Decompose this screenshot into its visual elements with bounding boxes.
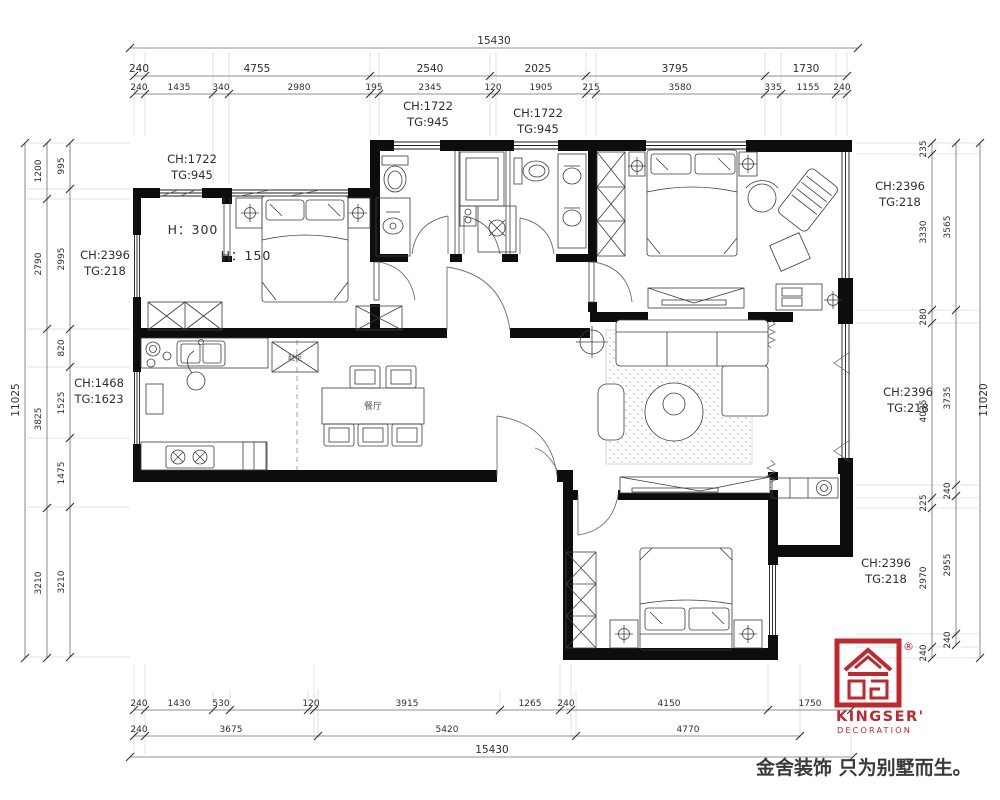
gas-stove-icon: [166, 446, 214, 468]
dim-text: 215: [582, 83, 599, 93]
ch-label: CH:1722: [167, 152, 217, 166]
dim-text: 120: [484, 83, 501, 93]
dimensions-bottom: 240 1430 530 120 3915 1265 240 4150 1750…: [126, 699, 857, 761]
tg-label: TG:218: [864, 572, 907, 586]
ch-label: CH:2396: [875, 179, 925, 193]
ch-label: CH:2396: [80, 248, 130, 262]
kingser-logo: ® KINGSER' DECORATION: [836, 640, 925, 735]
dim-text: 2980: [288, 83, 311, 93]
window-icon: [394, 142, 440, 149]
dim-text: 3580: [669, 83, 692, 93]
living-room: [576, 320, 770, 493]
tv-cabinet-icon: [620, 477, 770, 493]
dim-text: 240: [943, 482, 953, 499]
door-icon: [412, 216, 448, 254]
dim-text: 1475: [57, 462, 67, 485]
annotation-labels: CH:1722 TG:945 CH:1722 TG:945 CH:1722 TG…: [73, 99, 932, 586]
window-icon: [646, 142, 746, 149]
dim-text: 340: [212, 83, 229, 93]
storage-room: [148, 302, 222, 330]
dim-text: 3915: [396, 699, 419, 709]
chair-icon: [358, 424, 388, 446]
kitchen: [141, 338, 268, 470]
window-icon: [160, 190, 202, 196]
dim-text: 1750: [799, 699, 822, 709]
ch-label: CH:2396: [861, 556, 911, 570]
dim-text: 240: [833, 83, 850, 93]
dim-text: 3210: [57, 570, 67, 593]
ch-label: CH:2396: [883, 385, 933, 399]
dim-text: 2540: [417, 63, 444, 75]
door-icon: [578, 495, 618, 535]
lounge-chair-icon: [777, 167, 840, 233]
dim-text: 1525: [57, 392, 67, 415]
brand-subtitle: DECORATION: [837, 725, 912, 735]
dim-text: 5420: [436, 725, 459, 735]
bedroom2: [566, 548, 762, 650]
window-icon: [770, 565, 776, 635]
tg-label: TG:945: [406, 115, 449, 129]
registered-mark: ®: [903, 640, 914, 653]
bathroom-a: [376, 156, 410, 256]
dimensions-top: 15430 240 4755 2540 2025 3795 1730 240 1…: [126, 35, 862, 98]
dimensions-left: 11025 1200 2790 3825 3210 995 2995 820 1…: [10, 139, 74, 662]
wardrobe-icon: [597, 152, 625, 256]
floor-plan-drawing: 15430 240 4755 2540 2025 3795 1730 240 1…: [0, 0, 1000, 800]
double-bed-icon: [647, 150, 737, 256]
window-icon: [135, 235, 140, 297]
doors: [374, 216, 632, 535]
tg-label: TG:218: [878, 195, 921, 209]
ch-label: CH:1468: [74, 376, 124, 390]
chair-icon: [350, 366, 380, 388]
tv-cabinet-icon: [648, 288, 744, 308]
partitions: [224, 151, 510, 470]
height-label: H：150: [221, 248, 272, 263]
water-heater-icon: [146, 384, 163, 414]
dim-text: 3795: [662, 63, 689, 75]
dim-text: 4770: [677, 725, 700, 735]
dim-text: 195: [365, 83, 382, 93]
window-icon: [135, 372, 140, 444]
dimensions-right: 235 3330 280 4035 225 2970 240 3565 3735…: [919, 139, 990, 662]
ch-label: CH:1722: [403, 99, 453, 113]
dim-text: 1430: [168, 699, 191, 709]
dim-text: 240: [130, 83, 147, 93]
ch-label: CH:1722: [513, 106, 563, 120]
dim-text: 1730: [793, 63, 820, 75]
dim-text: 2345: [419, 83, 442, 93]
window-icon: [232, 190, 348, 196]
ottoman-icon: [770, 233, 811, 272]
dim-text: 11025: [10, 383, 22, 416]
brand-slogan: 金舍装饰 只为别墅而生。: [755, 756, 972, 779]
dim-text: 3735: [943, 387, 953, 410]
balcony: [772, 478, 838, 498]
side-table-icon: [598, 384, 624, 440]
dim-text: 4150: [658, 699, 681, 709]
double-washbasin-icon: [558, 154, 586, 248]
dim-text: 530: [212, 699, 229, 709]
chair-icon: [386, 366, 416, 388]
washbasin-icon: [376, 198, 410, 256]
entry-hall: 鞋柜: [272, 342, 318, 372]
shoe-cabinet-label: 鞋柜: [288, 353, 302, 362]
dim-text: 3565: [943, 216, 953, 239]
dim-text: 2025: [525, 63, 552, 75]
master-bedroom: [597, 150, 842, 310]
balcony-glazing: [842, 152, 849, 278]
counter-icon: [141, 338, 268, 368]
window-icon: [514, 142, 558, 149]
dim-text: 2955: [943, 554, 953, 577]
dim-text: 1435: [168, 83, 191, 93]
double-bed-icon: [640, 548, 732, 650]
washing-machine-icon: [772, 478, 838, 498]
door-icon: [520, 218, 554, 254]
floor-plan-canvas: 15430 240 4755 2540 2025 3795 1730 240 1…: [0, 0, 1000, 800]
dim-text: 240: [129, 63, 149, 75]
dim-text: 280: [919, 308, 929, 325]
dim-text: 1265: [519, 699, 542, 709]
toilet-icon: [514, 158, 549, 184]
tg-label: TG:1623: [73, 392, 123, 406]
dim-text: 15430: [477, 35, 510, 47]
dim-text: 240: [943, 631, 953, 648]
dim-text: 240: [919, 644, 929, 661]
dim-text: 3330: [919, 220, 929, 243]
door-icon: [589, 262, 632, 302]
cabinet-icon: [460, 206, 476, 226]
dim-text: 2970: [919, 566, 929, 589]
dim-text: 4755: [244, 63, 271, 75]
dim-text: 3675: [220, 725, 243, 735]
desk-icon: [776, 284, 822, 310]
double-bed-icon: [262, 196, 348, 302]
dining-room-label: 餐厅: [364, 400, 382, 412]
tg-label: TG:218: [83, 264, 126, 278]
door-icon: [464, 216, 500, 254]
dim-text: 3210: [34, 571, 44, 594]
tg-label: TG:945: [170, 168, 213, 182]
kitchen-sink-icon: [177, 340, 225, 367]
small-appliance-icon: [146, 342, 171, 367]
dining-room: 餐厅: [322, 366, 424, 446]
dim-text: 335: [764, 83, 781, 93]
shower-room: [460, 152, 516, 252]
dim-text: 240: [557, 699, 574, 709]
dim-text: 820: [57, 339, 67, 356]
faucet-figure-icon: [187, 351, 205, 390]
dim-text: 225: [919, 494, 929, 511]
dim-text: 15430: [475, 744, 508, 756]
dim-text: 995: [57, 157, 67, 174]
height-label: H：300: [168, 222, 219, 237]
door-icon: [447, 267, 510, 330]
dim-text: 2995: [57, 248, 67, 271]
dim-text: 240: [130, 699, 147, 709]
dim-text: 1200: [34, 159, 44, 182]
toilet-icon: [382, 156, 408, 192]
coffee-table-icon: [645, 383, 703, 441]
shower-icon: [460, 152, 504, 206]
dim-text: 11020: [978, 383, 990, 416]
chair-icon: [392, 424, 422, 446]
bathroom-b: [514, 154, 586, 248]
dim-text: 1905: [530, 83, 553, 93]
dim-text: 240: [130, 725, 147, 735]
dim-text: 235: [919, 140, 929, 157]
armchair-icon: [746, 181, 778, 212]
dim-text: 1155: [797, 83, 820, 93]
dim-text: 2790: [34, 252, 44, 275]
door-icon: [374, 262, 415, 300]
tg-label: TG:945: [516, 122, 559, 136]
cabinet-icon: [243, 442, 266, 470]
tg-label: TG:218: [886, 401, 929, 415]
chair-icon: [324, 424, 354, 446]
entry-door-icon: [497, 416, 557, 476]
wardrobe-icon: [148, 302, 222, 330]
dim-text: 3825: [34, 408, 44, 431]
balcony-glazing: [842, 324, 849, 458]
dim-text: 120: [302, 699, 319, 709]
brand-name: KINGSER': [836, 709, 925, 725]
